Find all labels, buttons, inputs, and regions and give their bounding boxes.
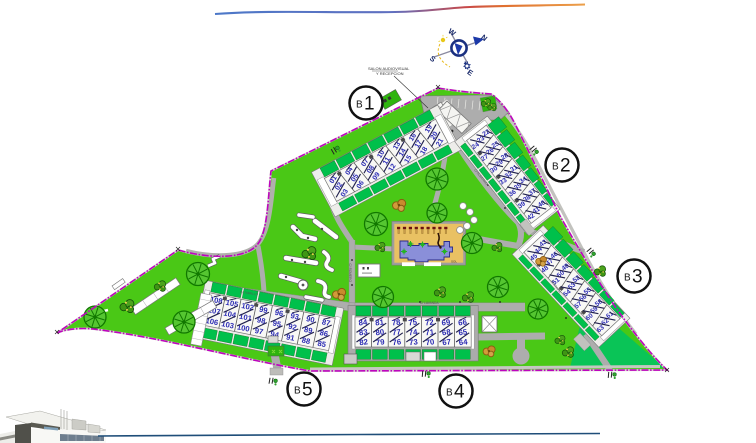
svg-text:2: 2 bbox=[560, 156, 571, 177]
svg-text:5: 5 bbox=[302, 380, 313, 401]
svg-text:C/ LAVANDA: C/ LAVANDA bbox=[420, 301, 439, 305]
svg-text:B: B bbox=[356, 100, 363, 111]
svg-text:Y RECEPCION: Y RECEPCION bbox=[376, 71, 404, 76]
svg-text:B: B bbox=[294, 386, 301, 397]
svg-text:C/ ROMERO: C/ ROMERO bbox=[348, 264, 352, 283]
svg-text:77: 77 bbox=[392, 327, 402, 337]
svg-text:1: 1 bbox=[364, 94, 375, 115]
svg-text:4: 4 bbox=[454, 382, 465, 403]
svg-text:B: B bbox=[552, 162, 559, 173]
svg-text:B: B bbox=[624, 273, 631, 284]
svg-text:83: 83 bbox=[358, 327, 368, 337]
svg-text:3: 3 bbox=[632, 267, 643, 288]
svg-text:SOL: SOL bbox=[451, 260, 457, 264]
svg-text:B: B bbox=[446, 388, 453, 399]
svg-text:68: 68 bbox=[441, 327, 451, 337]
